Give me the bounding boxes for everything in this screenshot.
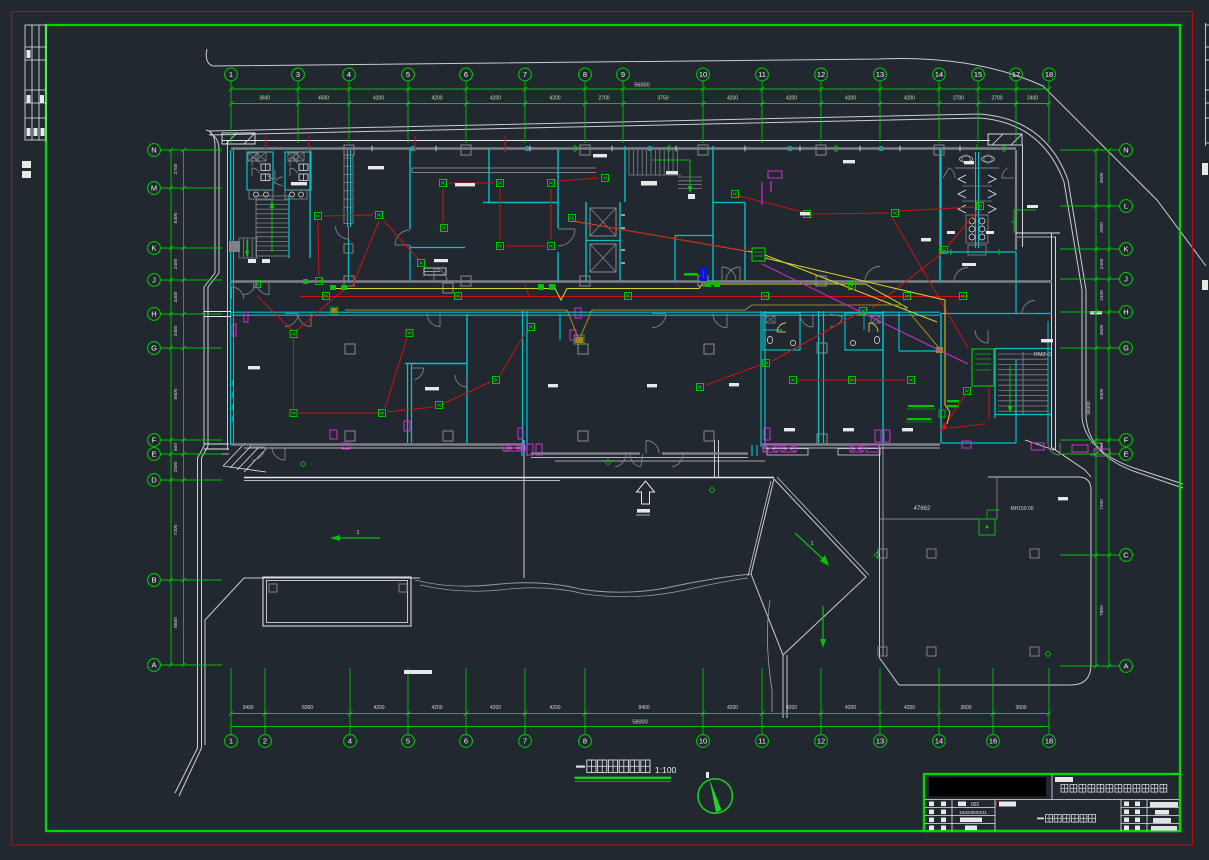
svg-text:J: J (1124, 275, 1128, 284)
svg-text:4200: 4200 (845, 96, 856, 102)
svg-text:58000: 58000 (632, 720, 647, 726)
svg-text:N: N (151, 146, 156, 155)
svg-text:4200: 4200 (786, 96, 797, 102)
svg-text:14: 14 (935, 737, 943, 746)
svg-text:600: 600 (173, 443, 179, 451)
svg-text:4200: 4200 (373, 96, 384, 102)
svg-text:6900: 6900 (1099, 388, 1105, 399)
svg-text:7800: 7800 (1099, 605, 1105, 616)
svg-text:15: 15 (974, 70, 982, 79)
svg-text:4500: 4500 (318, 96, 329, 102)
svg-text:B: B (151, 576, 156, 585)
svg-text:3000: 3000 (1099, 222, 1105, 233)
svg-text:6000: 6000 (302, 705, 313, 711)
svg-text:7: 7 (523, 70, 527, 79)
svg-text:9: 9 (621, 70, 625, 79)
svg-text:4200: 4200 (431, 96, 442, 102)
svg-text:3600: 3600 (1099, 324, 1105, 335)
svg-text:2700: 2700 (173, 163, 179, 174)
svg-text:G: G (1123, 344, 1129, 353)
svg-text:L: L (1124, 202, 1128, 211)
svg-text:H: H (151, 310, 156, 319)
svg-text:4200: 4200 (549, 96, 560, 102)
svg-text:1: 1 (357, 530, 360, 536)
svg-text:17: 17 (1012, 70, 1020, 79)
svg-text:4200: 4200 (845, 705, 856, 711)
svg-text:13: 13 (876, 737, 884, 746)
svg-text:7200: 7200 (1099, 499, 1105, 510)
svg-text:4200: 4200 (549, 705, 560, 711)
svg-text:8400: 8400 (638, 705, 649, 711)
svg-text:E: E (1123, 450, 1128, 459)
svg-text:12: 12 (817, 737, 825, 746)
svg-text:3750: 3750 (657, 96, 668, 102)
svg-text:8: 8 (583, 737, 587, 746)
svg-text:3600: 3600 (1015, 705, 1026, 711)
svg-text:4200: 4200 (490, 96, 501, 102)
svg-text:4200: 4200 (786, 705, 797, 711)
svg-text:G: G (151, 344, 157, 353)
svg-text:3600: 3600 (259, 96, 270, 102)
svg-text:12: 12 (817, 70, 825, 79)
svg-text:6: 6 (464, 737, 468, 746)
svg-text:6600: 6600 (173, 388, 179, 399)
svg-text:2400: 2400 (1027, 96, 1038, 102)
svg-text:4200: 4200 (373, 705, 384, 711)
svg-text:2400: 2400 (1099, 290, 1105, 301)
svg-text:2400: 2400 (1099, 258, 1105, 269)
svg-text:F: F (152, 436, 157, 445)
svg-text:4200: 4200 (904, 96, 915, 102)
svg-text:3400: 3400 (173, 291, 179, 302)
svg-text:13: 13 (876, 70, 884, 79)
svg-text:J: J (152, 276, 156, 285)
svg-text:A: A (1123, 662, 1128, 671)
svg-text:18: 18 (1045, 737, 1053, 746)
svg-text:3: 3 (296, 70, 300, 79)
svg-text:3400: 3400 (242, 705, 253, 711)
svg-text:A: A (151, 661, 156, 670)
svg-text:11: 11 (758, 737, 766, 746)
svg-text:N: N (1123, 146, 1128, 155)
svg-text:4200: 4200 (431, 705, 442, 711)
svg-text:1:100: 1:100 (655, 765, 677, 775)
svg-text:2700: 2700 (598, 96, 609, 102)
svg-text:600: 600 (1099, 443, 1105, 451)
svg-text:4200: 4200 (904, 705, 915, 711)
svg-text:47662: 47662 (914, 506, 931, 512)
svg-text:7200: 7200 (173, 524, 179, 535)
svg-text:F: F (1124, 436, 1129, 445)
svg-text:5: 5 (406, 737, 410, 746)
svg-text:MH150.00: MH150.00 (1010, 506, 1033, 512)
svg-text:H: H (1123, 308, 1128, 317)
svg-text:E: E (151, 450, 156, 459)
svg-text:15020600211: 15020600211 (959, 810, 987, 815)
svg-text:18: 18 (1045, 70, 1053, 79)
svg-text:10: 10 (699, 70, 707, 79)
svg-text:2500: 2500 (173, 461, 179, 472)
svg-text:10: 10 (699, 737, 707, 746)
svg-text:7: 7 (523, 737, 527, 746)
svg-text:8: 8 (583, 70, 587, 79)
svg-text:D: D (151, 476, 157, 485)
svg-text:16: 16 (989, 737, 997, 746)
svg-text:3600: 3600 (1099, 172, 1105, 183)
svg-text:2: 2 (263, 737, 267, 746)
svg-text:58300: 58300 (1086, 401, 1092, 415)
svg-text:56000: 56000 (634, 83, 649, 89)
svg-text:2400: 2400 (173, 258, 179, 269)
svg-text:6: 6 (464, 70, 468, 79)
svg-text:11: 11 (758, 70, 766, 79)
svg-text:5: 5 (406, 70, 410, 79)
svg-text:K: K (151, 244, 156, 253)
svg-text:4200: 4200 (727, 705, 738, 711)
svg-text:002: 002 (971, 802, 980, 808)
svg-text:6300: 6300 (173, 212, 179, 223)
svg-text:M: M (151, 184, 157, 193)
svg-text:1: 1 (229, 70, 233, 79)
svg-text:2700: 2700 (953, 96, 964, 102)
svg-text:4: 4 (347, 70, 351, 79)
svg-text:1: 1 (811, 541, 814, 547)
svg-text:3600: 3600 (960, 705, 971, 711)
svg-text:4: 4 (348, 737, 352, 746)
svg-text:C: C (1123, 551, 1129, 560)
svg-text:4200: 4200 (490, 705, 501, 711)
svg-text:14: 14 (935, 70, 943, 79)
svg-text:1: 1 (229, 737, 233, 746)
svg-text:3450: 3450 (173, 325, 179, 336)
svg-text:2700: 2700 (991, 96, 1002, 102)
svg-text:4200: 4200 (727, 96, 738, 102)
svg-text:K: K (1123, 245, 1128, 254)
svg-text:8600: 8600 (173, 617, 179, 628)
